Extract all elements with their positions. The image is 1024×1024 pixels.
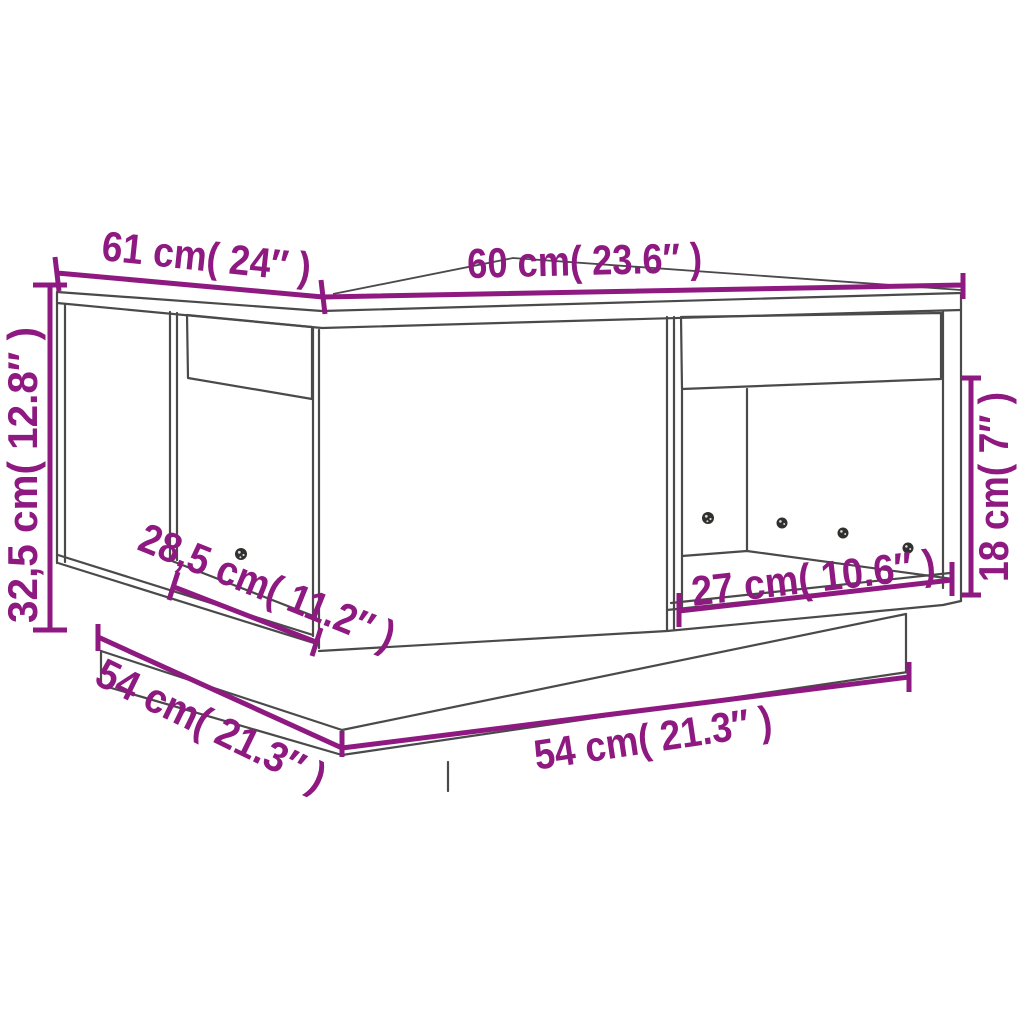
dimension-base-depth-54cm: 54 cm( 21.3″ ) bbox=[89, 624, 342, 801]
dimension-label: 60 cm( 23.6″ ) bbox=[467, 234, 703, 287]
middle-divider-edge bbox=[667, 317, 674, 630]
screw-icon bbox=[777, 518, 788, 529]
right-drawer-front bbox=[681, 313, 941, 389]
dimension-width-60cm: 60 cm( 23.6″ ) bbox=[323, 234, 963, 299]
screw-icon bbox=[702, 512, 714, 524]
dimension-base-width-54cm: 54 cm( 21.3″ ) bbox=[342, 662, 909, 779]
dimension-label: 32,5 cm( 12.8″ ) bbox=[0, 327, 46, 623]
dimension-opening-height-18cm: 18 cm( 7″ ) bbox=[961, 378, 1017, 595]
dimension-left-opening-28-5cm: 28,5 cm( 11.2″ ) bbox=[133, 514, 403, 659]
diagram-canvas: 61 cm( 24″ ) 60 cm( 23.6″ ) 32,5 cm( 12.… bbox=[0, 0, 1024, 1024]
dimension-label: 18 cm( 7″ ) bbox=[970, 392, 1017, 582]
front-door-panel bbox=[319, 317, 674, 651]
screw-icon bbox=[838, 528, 849, 539]
dimension-depth-61cm: 61 cm( 24″ ) bbox=[55, 222, 325, 314]
coffee-table-dimension-diagram: 61 cm( 24″ ) 60 cm( 23.6″ ) 32,5 cm( 12.… bbox=[0, 0, 1024, 1024]
left-drawer-front bbox=[187, 315, 312, 399]
